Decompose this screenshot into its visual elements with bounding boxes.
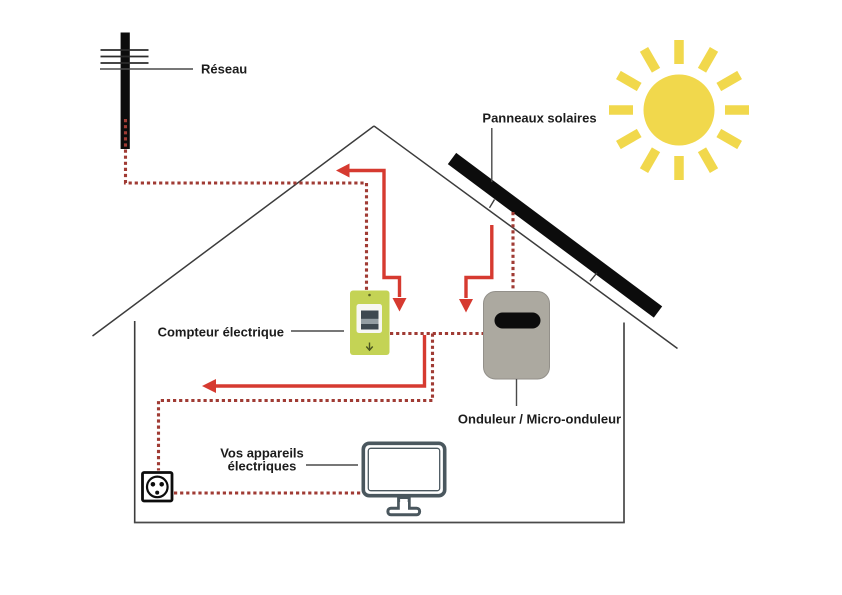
svg-text:Compteur électrique: Compteur électrique: [158, 325, 284, 340]
svg-text:Réseau: Réseau: [201, 62, 247, 77]
svg-text:Onduleur / Micro-onduleur: Onduleur / Micro-onduleur: [458, 412, 621, 427]
svg-text:électriques: électriques: [228, 459, 297, 474]
svg-text:Panneaux solaires: Panneaux solaires: [482, 111, 596, 126]
